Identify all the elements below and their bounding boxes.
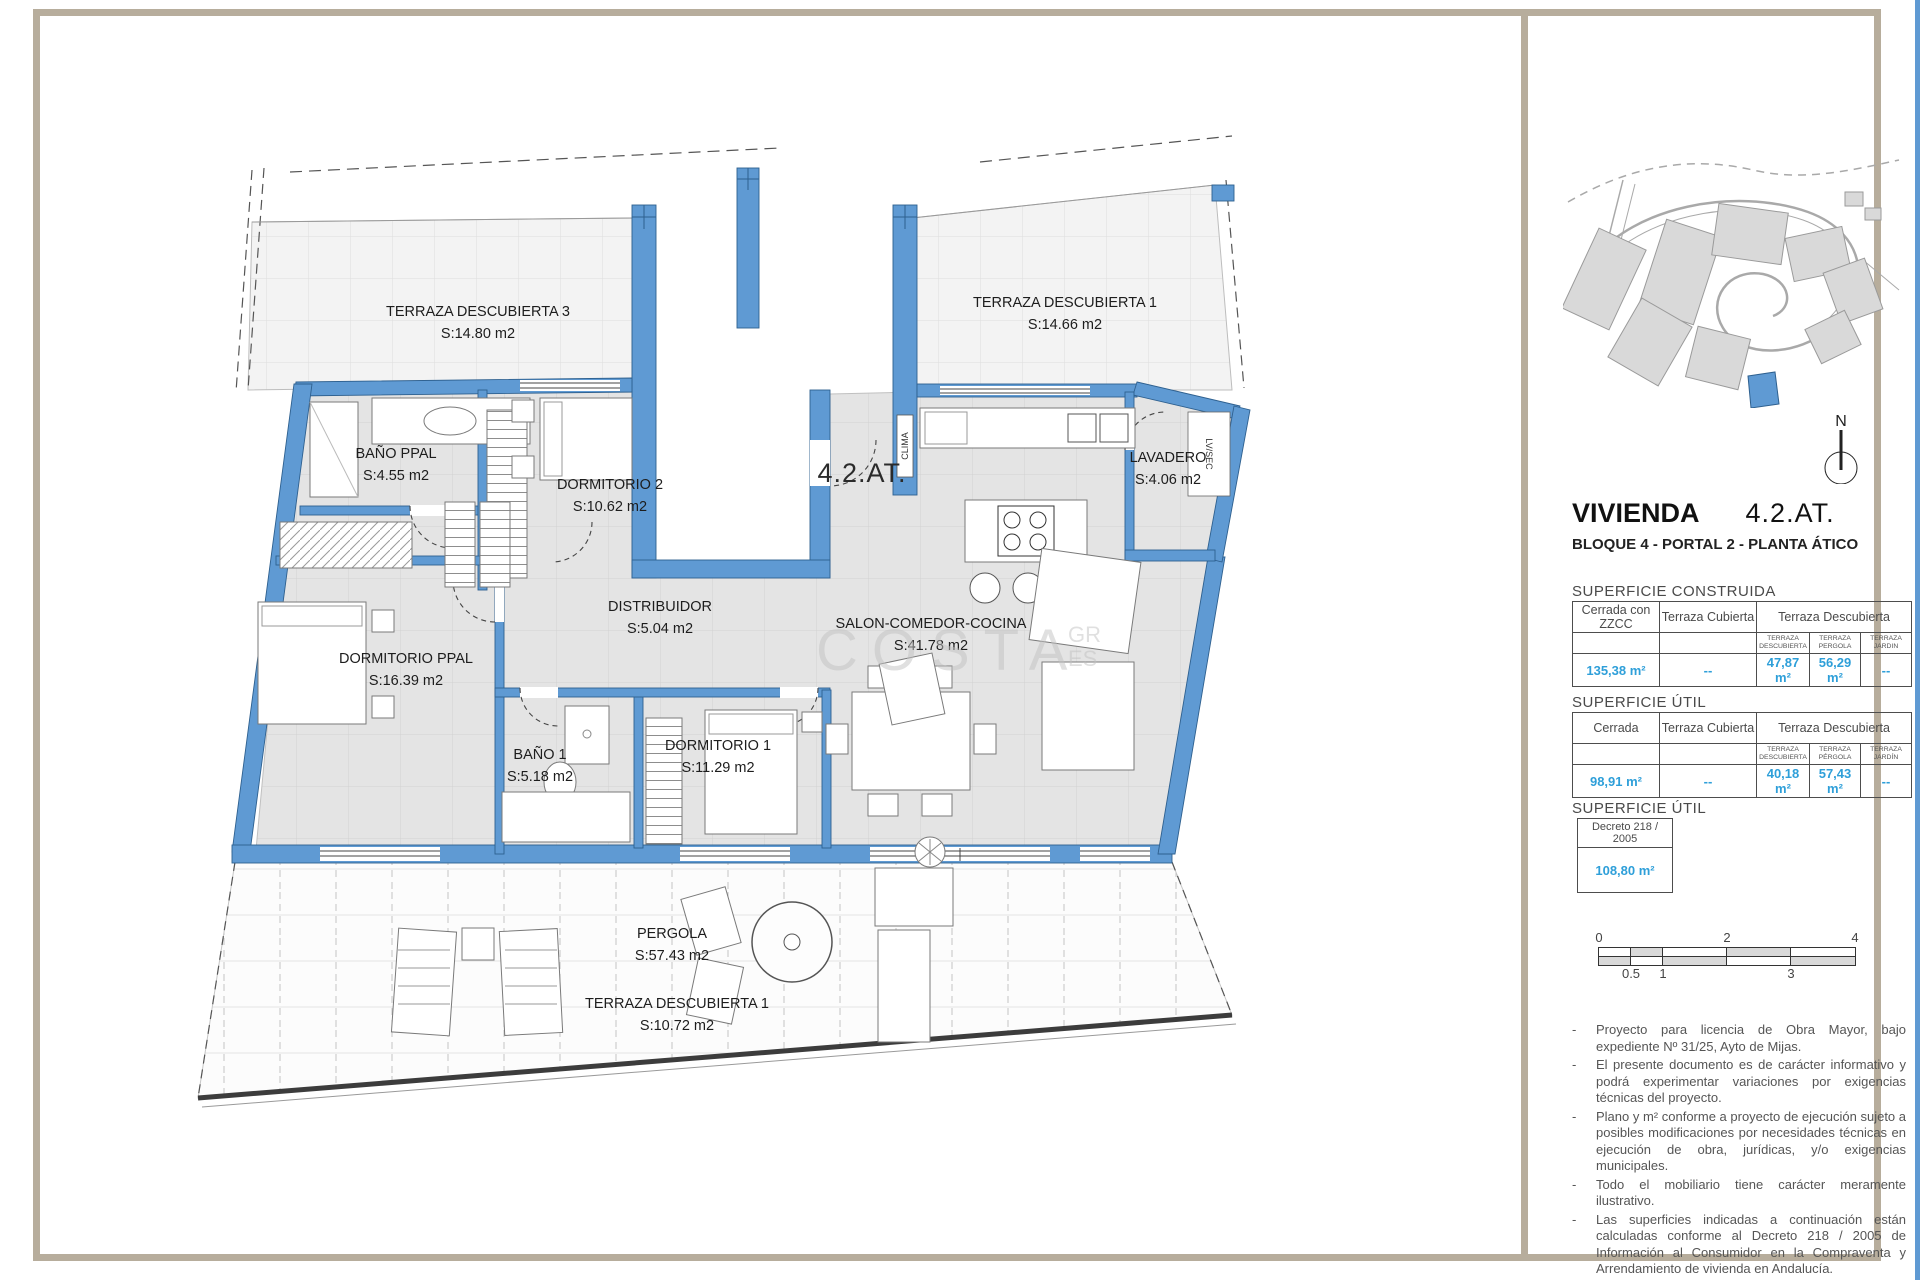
table-value: 98,91 m² (1573, 765, 1660, 798)
notes-list: -Proyecto para licencia de Obra Mayor, b… (1572, 1022, 1906, 1280)
col-header: Cerrada con ZZCC (1573, 602, 1660, 633)
site-plan-highlight (1748, 372, 1779, 408)
table-value: -- (1861, 654, 1912, 687)
unit-number-label: 4.2.AT. (817, 458, 906, 488)
room-label: DISTRIBUIDOR (608, 599, 712, 615)
decreto-value: 108,80 m² (1578, 848, 1673, 893)
scale-tick-label: 2 (1723, 930, 1730, 945)
table-value: 47,87 m² (1757, 654, 1810, 687)
construida-table: Cerrada con ZZCC Terraza Cubierta Terraz… (1572, 601, 1912, 687)
floor-plan: CLIMA LV/SEC (140, 110, 1390, 1170)
table-value: 56,29 m² (1810, 654, 1861, 687)
room-label: TERRAZA DESCUBIERTA 1 (585, 996, 769, 1012)
room-label: PERGOLA (637, 926, 707, 942)
column-cross-icon (632, 168, 917, 229)
clima-label: CLIMA (900, 432, 910, 460)
sheet-title: VIVIENDA4.2.AT. (1572, 498, 1835, 529)
note-item: -El presente documento es de carácter in… (1572, 1057, 1906, 1107)
room-area: S:4.06 m2 (1135, 472, 1201, 488)
scale-tick-label: 4 (1851, 930, 1858, 945)
sub-header: TERRAZA PÉRGOLA (1810, 744, 1861, 765)
room-area: S:16.39 m2 (369, 673, 443, 689)
scale-tick-label: 1 (1659, 966, 1666, 981)
panel-divider (1521, 9, 1528, 1261)
sub-header: TERRAZA JARDÍN (1861, 744, 1912, 765)
decreto-table: Decreto 218 / 2005 108,80 m² (1577, 818, 1673, 893)
svg-text:ES: ES (1068, 646, 1097, 671)
col-header: Terraza Cubierta (1660, 602, 1757, 633)
title-unit-code: 4.2.AT. (1746, 498, 1835, 528)
note-item: -Las superficies indicadas a continuació… (1572, 1212, 1906, 1278)
scale-tick-label: 3 (1787, 966, 1794, 981)
note-item: -Todo el mobiliario tiene carácter meram… (1572, 1177, 1906, 1210)
room-area: S:11.29 m2 (681, 760, 754, 776)
table-value: 57,43 m² (1810, 765, 1861, 798)
north-arrow: N (1801, 398, 1881, 484)
room-area: S:4.55 m2 (363, 468, 429, 484)
sub-header: TERRAZA PERGOLA (1810, 633, 1861, 654)
col-header: Terraza Cubierta (1660, 713, 1757, 744)
site-plan-map (1563, 140, 1905, 408)
room-area: S:10.72 m2 (640, 1018, 714, 1034)
room-label: LAVADERO (1130, 450, 1207, 466)
north-label: N (1835, 413, 1847, 430)
room-area: S:5.18 m2 (507, 769, 573, 785)
sub-header: TERRAZA DESCUBIERTA (1757, 744, 1810, 765)
util-heading: SUPERFICIE ÚTIL (1572, 694, 1706, 711)
util-table: Cerrada Terraza Cubierta Terraza Descubi… (1572, 712, 1912, 798)
svg-text:GR: GR (1068, 622, 1101, 647)
note-item: -Plano y m² conforme a proyecto de ejecu… (1572, 1109, 1906, 1175)
table-value: 135,38 m² (1573, 654, 1660, 687)
col-header: Terraza Descubierta (1757, 713, 1912, 744)
room-area: S:57.43 m2 (635, 948, 709, 964)
scale-tick-label: 0.5 (1622, 966, 1640, 981)
watermark: COSTA GR ES (816, 618, 1101, 683)
room-area: S:5.04 m2 (627, 621, 693, 637)
table-value: 40,18 m² (1757, 765, 1810, 798)
room-area: S:10.62 m2 (573, 499, 647, 515)
table-value: -- (1861, 765, 1912, 798)
room-label: BAÑO 1 (513, 746, 566, 763)
scale-tick-label: 0 (1595, 930, 1602, 945)
table-value: -- (1660, 765, 1757, 798)
room-label: DORMITORIO 1 (665, 738, 771, 754)
floor-plan-area: CLIMA LV/SEC (140, 110, 1390, 1170)
room-label: DORMITORIO PPAL (339, 651, 473, 667)
room-area: S:14.66 m2 (1028, 317, 1102, 333)
sub-header: TERRAZA JARDIN (1861, 633, 1912, 654)
title-vivienda: VIVIENDA (1572, 498, 1700, 528)
room-label: TERRAZA DESCUBIERTA 3 (386, 304, 570, 320)
util2-heading: SUPERFICIE ÚTIL (1572, 800, 1706, 817)
sub-header: TERRAZA DESCUBIERTA (1757, 633, 1810, 654)
room-label: DORMITORIO 2 (557, 477, 663, 493)
room-label: BAÑO PPAL (355, 445, 436, 462)
col-header: Cerrada (1573, 713, 1660, 744)
note-item: -Proyecto para licencia de Obra Mayor, b… (1572, 1022, 1906, 1055)
svg-text:COSTA: COSTA (816, 618, 1082, 683)
scale-bar: 0 2 4 0.5 1 3 (1598, 930, 1856, 982)
table-value: -- (1660, 654, 1757, 687)
sheet-subtitle: BLOQUE 4 - PORTAL 2 - PLANTA ÁTICO (1572, 536, 1858, 553)
decreto-header: Decreto 218 / 2005 (1578, 819, 1673, 848)
room-label: TERRAZA DESCUBIERTA 1 (973, 295, 1157, 311)
window-edge-strip (1915, 0, 1920, 1280)
room-area: S:14.80 m2 (441, 326, 515, 342)
col-header: Terraza Descubierta (1757, 602, 1912, 633)
construida-heading: SUPERFICIE CONSTRUIDA (1572, 583, 1776, 600)
